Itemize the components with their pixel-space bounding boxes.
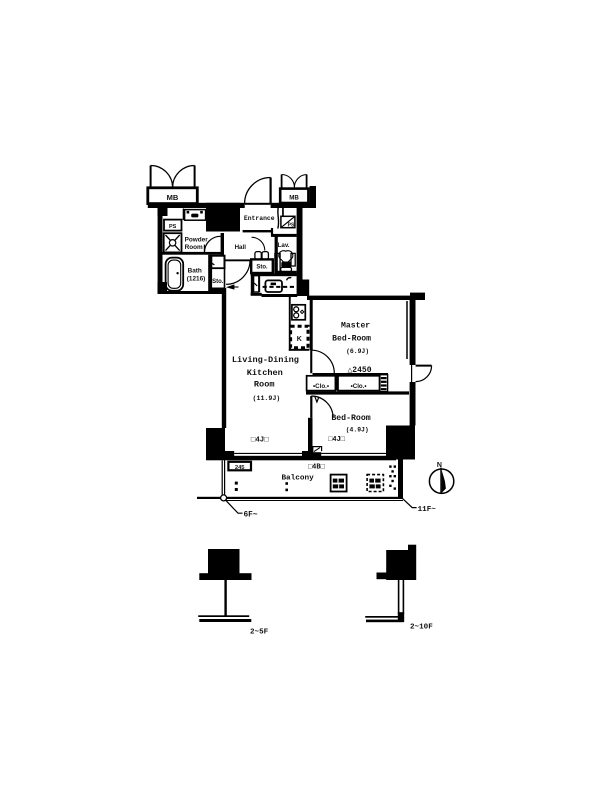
svg-text:Powder: Powder <box>185 237 209 244</box>
svg-text:□4J□: □4J□ <box>251 437 269 445</box>
svg-text:Room: Room <box>185 244 203 251</box>
svg-text:MB: MB <box>289 195 299 202</box>
svg-text:•Clo.•: •Clo.• <box>351 383 367 390</box>
svg-text:PS: PS <box>169 224 177 230</box>
svg-text:Sto.: Sto. <box>256 265 268 271</box>
svg-text:(6.9J): (6.9J) <box>346 348 369 355</box>
svg-text:Entrance: Entrance <box>244 215 275 222</box>
svg-text:□4J□: □4J□ <box>328 436 346 444</box>
svg-text:□4B□: □4B□ <box>308 464 326 472</box>
svg-text:245: 245 <box>235 465 245 471</box>
svg-text:Master: Master <box>341 321 370 330</box>
svg-text:(11.9J): (11.9J) <box>253 395 281 402</box>
svg-text:Living-Dining: Living-Dining <box>232 355 299 365</box>
svg-text:Hall: Hall <box>235 244 247 251</box>
svg-text:MB: MB <box>167 193 179 202</box>
svg-text:(1216): (1216) <box>187 276 205 283</box>
svg-text:Kitchen: Kitchen <box>247 368 283 378</box>
svg-text:Room: Room <box>254 379 275 389</box>
svg-text:2~10F: 2~10F <box>410 623 433 631</box>
svg-text:11F~: 11F~ <box>418 506 437 514</box>
svg-text:2~5F: 2~5F <box>250 628 269 636</box>
svg-text:Bath: Bath <box>188 268 202 275</box>
svg-text:K: K <box>297 336 302 343</box>
svg-text:PS: PS <box>288 223 295 229</box>
svg-text:Bed-Room: Bed-Room <box>331 413 370 423</box>
svg-text:Balcony: Balcony <box>281 475 314 483</box>
svg-text:(4.9J): (4.9J) <box>346 426 369 433</box>
svg-text:•Clo.•: •Clo.• <box>313 383 329 390</box>
svg-text:6F~: 6F~ <box>244 512 258 520</box>
svg-text:Sto.: Sto. <box>212 279 224 285</box>
svg-text:Lav.: Lav. <box>278 242 290 249</box>
svg-text:Bed-Room: Bed-Room <box>332 335 371 344</box>
